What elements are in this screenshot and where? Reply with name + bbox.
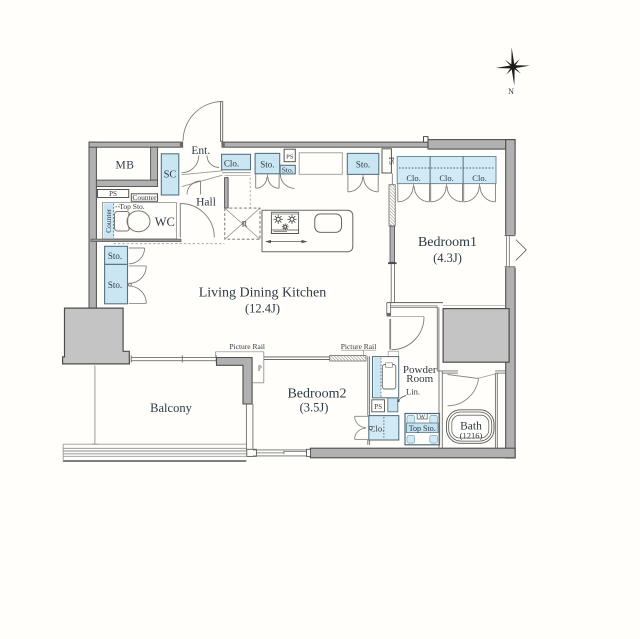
svg-text:Lin.: Lin. [406, 386, 420, 396]
svg-text:Bedroom2: Bedroom2 [287, 387, 346, 402]
svg-text:Clo.: Clo. [406, 173, 420, 183]
svg-text:Sto.: Sto. [260, 159, 274, 169]
svg-text:Living Dining Kitchen: Living Dining Kitchen [199, 286, 327, 301]
svg-text:Sto.: Sto. [356, 159, 370, 169]
svg-text:Ent.: Ent. [191, 145, 210, 157]
svg-text:WC: WC [155, 215, 175, 229]
svg-text:Clo.: Clo. [439, 173, 453, 183]
svg-text:(12.4J): (12.4J) [245, 302, 280, 316]
svg-text:PS: PS [374, 403, 382, 411]
svg-text:W: W [419, 414, 426, 421]
svg-text:PS: PS [286, 154, 294, 161]
svg-text:Counter: Counter [104, 208, 113, 233]
svg-text:Sto.: Sto. [282, 165, 294, 174]
svg-text:R: R [242, 218, 248, 228]
svg-text:(3.5J): (3.5J) [300, 401, 329, 415]
svg-text:Clo.: Clo. [224, 159, 239, 169]
svg-text:SC: SC [164, 169, 177, 180]
svg-text:Clo.: Clo. [472, 173, 486, 183]
svg-text:PS: PS [387, 157, 395, 165]
svg-text:N: N [508, 87, 514, 96]
svg-text:PS: PS [109, 190, 117, 198]
svg-text:P: P [258, 364, 262, 372]
svg-text:Picture Rail: Picture Rail [341, 342, 377, 351]
svg-text:MB: MB [115, 160, 134, 172]
svg-text:Top Sto.: Top Sto. [119, 202, 144, 211]
svg-text:Hall: Hall [196, 196, 216, 208]
svg-text:(4.3J): (4.3J) [433, 251, 462, 265]
svg-text:Picture Rail: Picture Rail [229, 342, 265, 351]
svg-text:Bedroom1: Bedroom1 [418, 235, 477, 250]
svg-text:Sto.: Sto. [108, 251, 122, 261]
svg-text:Top Sto.: Top Sto. [409, 424, 436, 433]
svg-text:Sto.: Sto. [108, 280, 122, 290]
svg-text:Room: Room [406, 373, 433, 385]
svg-text:Counter: Counter [132, 193, 157, 202]
svg-text:(1216): (1216) [460, 431, 483, 441]
svg-text:Balcony: Balcony [150, 401, 192, 415]
